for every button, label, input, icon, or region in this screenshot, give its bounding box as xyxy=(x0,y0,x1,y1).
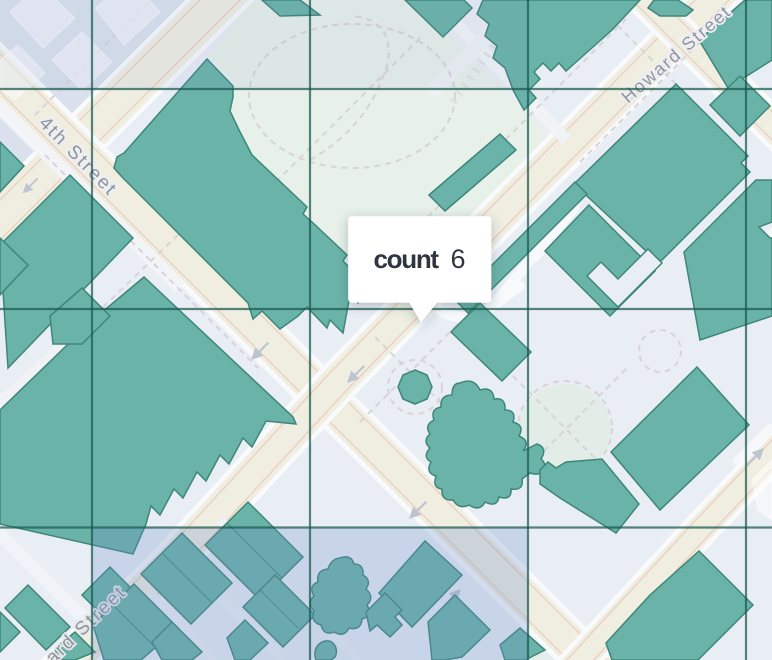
svg-text:6: 6 xyxy=(451,244,466,274)
svg-text:count: count xyxy=(374,244,440,274)
